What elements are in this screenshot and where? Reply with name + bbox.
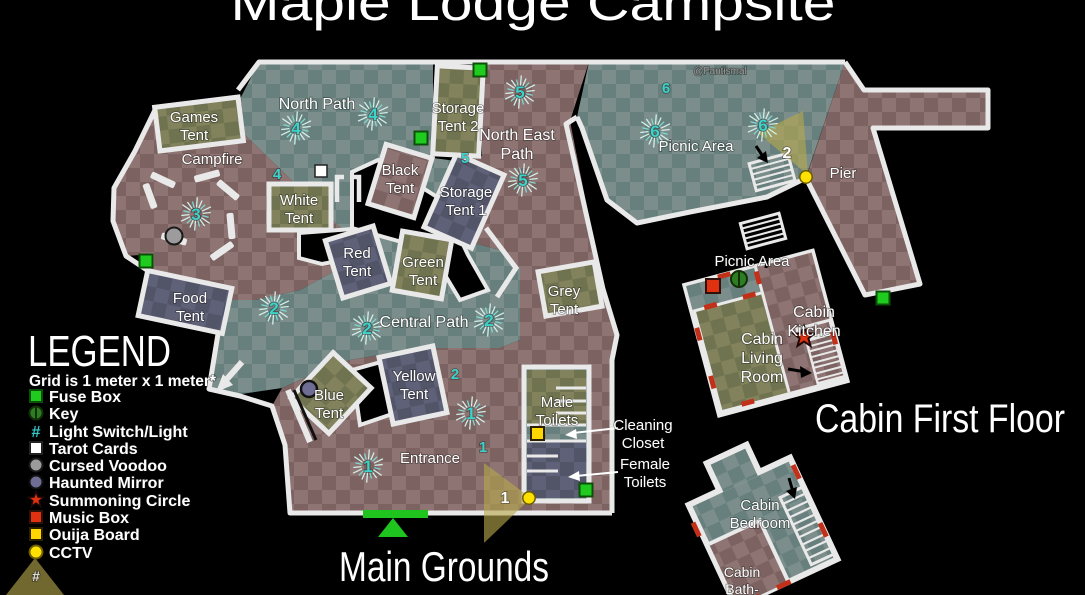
svg-text:Cleaning: Cleaning (613, 417, 672, 434)
svg-text:Cabin First Floor: Cabin First Floor (815, 397, 1065, 441)
svg-text:Grey: Grey (548, 283, 581, 300)
svg-text:Pier: Pier (830, 165, 857, 182)
svg-text:North Path: North Path (279, 96, 355, 113)
svg-text:1: 1 (479, 439, 487, 456)
svg-text:CCTV: CCTV (49, 545, 93, 562)
svg-text:5: 5 (518, 171, 527, 190)
svg-text:Toilets: Toilets (624, 474, 667, 491)
svg-text:4: 4 (273, 166, 282, 183)
svg-text:Entrance: Entrance (400, 450, 460, 467)
svg-text:3: 3 (191, 205, 200, 224)
svg-text:6: 6 (662, 80, 670, 97)
svg-text:4: 4 (291, 119, 301, 138)
svg-text:Light Switch/Light: Light Switch/Light (49, 424, 188, 441)
svg-text:2: 2 (484, 311, 493, 330)
svg-text:Tent: Tent (315, 405, 344, 422)
svg-text:Green: Green (402, 254, 444, 271)
svg-text:Path: Path (501, 146, 534, 163)
svg-text:Tent: Tent (343, 263, 372, 280)
svg-text:Black: Black (382, 162, 419, 179)
svg-text:LEGEND: LEGEND (28, 327, 171, 376)
svg-text:Red: Red (343, 245, 371, 262)
svg-text:Tent 2: Tent 2 (438, 118, 479, 135)
svg-text:Main Grounds: Main Grounds (339, 543, 549, 590)
svg-text:Grid is 1 meter x 1 meter*: Grid is 1 meter x 1 meter* (29, 373, 217, 390)
svg-text:North East: North East (479, 127, 555, 144)
svg-text:Campfire: Campfire (182, 151, 243, 168)
svg-text:5: 5 (461, 150, 469, 167)
svg-text:Kitchen: Kitchen (787, 323, 840, 340)
svg-text:Tent: Tent (550, 301, 579, 318)
svg-text:Storage: Storage (432, 100, 485, 117)
svg-text:White: White (280, 192, 318, 209)
svg-text:Tarot Cards: Tarot Cards (49, 441, 138, 458)
svg-text:Picnic Area: Picnic Area (658, 138, 734, 155)
svg-text:Maple Lodge Campsite: Maple Lodge Campsite (231, 0, 836, 31)
svg-text:#: # (32, 568, 40, 584)
svg-text:Games: Games (170, 109, 218, 126)
svg-text:Toilets: Toilets (536, 412, 579, 429)
svg-text:Tent: Tent (176, 308, 205, 325)
svg-text:Tent: Tent (409, 272, 438, 289)
svg-text:Haunted Mirror: Haunted Mirror (49, 475, 164, 492)
svg-text:2: 2 (362, 319, 371, 338)
svg-text:Cabin: Cabin (793, 304, 835, 321)
svg-text:1: 1 (501, 490, 510, 507)
svg-text:Storage: Storage (440, 184, 493, 201)
svg-text:Closet: Closet (622, 435, 665, 452)
svg-text:Cabin: Cabin (724, 564, 761, 580)
svg-text:Cursed Voodoo: Cursed Voodoo (49, 458, 167, 475)
svg-text:Male: Male (541, 394, 574, 411)
svg-text:Female: Female (620, 456, 670, 473)
svg-text:2: 2 (269, 299, 278, 318)
svg-text:Fuse Box: Fuse Box (49, 389, 121, 406)
svg-text:@Fantismal: @Fantismal (693, 66, 747, 77)
svg-text:Room: Room (741, 369, 784, 386)
svg-text:Key: Key (49, 406, 78, 423)
svg-text:1: 1 (466, 404, 475, 423)
svg-text:Music Box: Music Box (49, 510, 129, 527)
svg-text:Cabin: Cabin (741, 331, 783, 348)
svg-text:Ouija Board: Ouija Board (49, 527, 140, 544)
svg-text:4: 4 (368, 105, 378, 124)
svg-text:Tent: Tent (180, 127, 209, 144)
svg-text:Bath-: Bath- (725, 581, 759, 595)
svg-text:2: 2 (783, 145, 792, 162)
svg-text:5: 5 (515, 83, 524, 102)
svg-text:Food: Food (173, 290, 207, 307)
svg-text:Bedroom: Bedroom (730, 515, 791, 532)
svg-text:Tent 1: Tent 1 (446, 202, 487, 219)
svg-text:Central Path: Central Path (380, 314, 469, 331)
svg-text:6: 6 (758, 116, 767, 135)
svg-text:1: 1 (363, 457, 372, 476)
svg-text:Tent: Tent (386, 180, 415, 197)
svg-text:Living: Living (741, 350, 783, 367)
svg-text:2: 2 (451, 366, 459, 383)
svg-text:Picnic Area: Picnic Area (714, 253, 790, 270)
svg-text:Blue: Blue (314, 387, 344, 404)
svg-text:Yellow: Yellow (393, 368, 436, 385)
svg-text:#: # (32, 424, 41, 441)
svg-text:Tent: Tent (400, 386, 429, 403)
svg-text:Cabin: Cabin (740, 497, 779, 514)
svg-text:Summoning Circle: Summoning Circle (49, 493, 190, 510)
svg-text:Tent: Tent (285, 210, 314, 227)
